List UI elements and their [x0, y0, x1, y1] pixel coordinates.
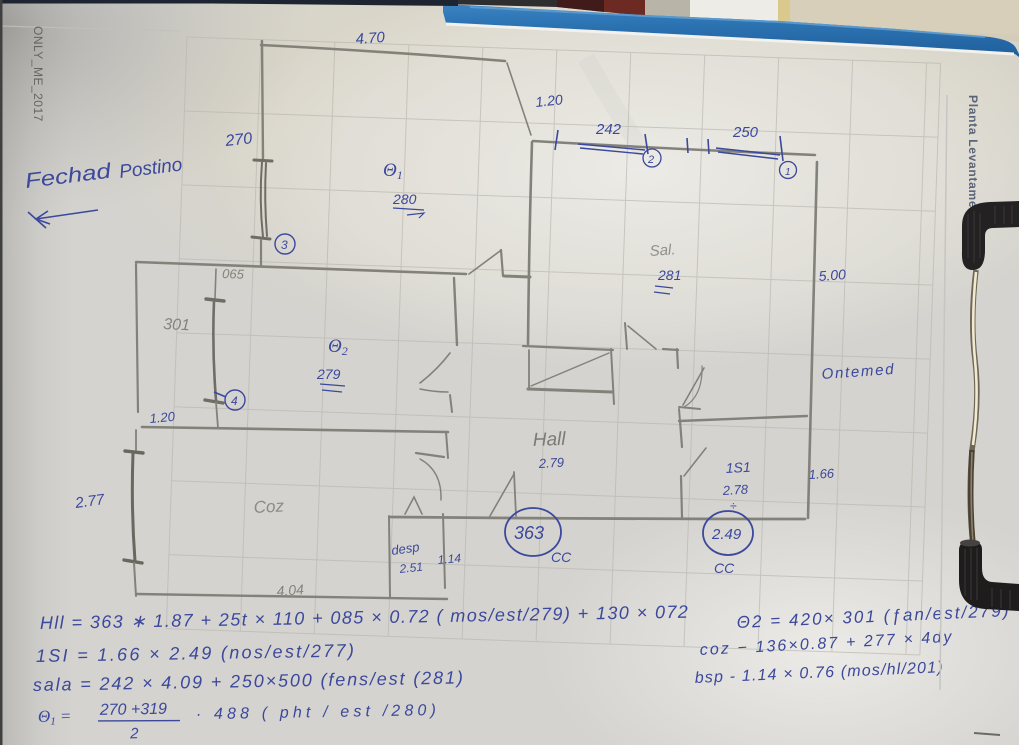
- svg-text:4.70: 4.70: [355, 29, 386, 48]
- svg-text:3: 3: [281, 238, 288, 252]
- svg-text:279: 279: [316, 366, 341, 382]
- svg-text:270 +319: 270 +319: [99, 701, 168, 719]
- svg-text:ONLY_ME_2017: ONLY_ME_2017: [31, 26, 45, 122]
- svg-text:363: 363: [514, 523, 544, 543]
- svg-text:2: 2: [647, 154, 654, 166]
- svg-text:270: 270: [224, 130, 253, 150]
- svg-text:2.49: 2.49: [711, 526, 742, 543]
- svg-text:2.78: 2.78: [721, 482, 749, 498]
- svg-text:Sal.: Sal.: [649, 241, 676, 260]
- svg-text:Hall: Hall: [532, 429, 566, 451]
- svg-text:250: 250: [732, 124, 759, 141]
- svg-text:1.14: 1.14: [437, 551, 462, 567]
- svg-text:301: 301: [163, 316, 191, 334]
- svg-text:1.66: 1.66: [808, 466, 835, 482]
- svg-text:CC: CC: [551, 549, 572, 565]
- svg-text:280: 280: [392, 191, 417, 207]
- svg-text:1.20: 1.20: [149, 409, 176, 426]
- svg-text:5.00: 5.00: [818, 266, 847, 284]
- svg-text:2.79: 2.79: [537, 455, 564, 471]
- svg-text:242: 242: [595, 121, 622, 138]
- svg-text:4.04: 4.04: [276, 581, 305, 599]
- svg-text:Coz: Coz: [253, 496, 285, 517]
- svg-text:1S1: 1S1: [725, 459, 751, 476]
- svg-text:2: 2: [129, 725, 139, 742]
- svg-text:1: 1: [785, 167, 791, 178]
- svg-text:2.51: 2.51: [398, 560, 424, 576]
- svg-text:281: 281: [657, 267, 681, 283]
- svg-text:4: 4: [231, 394, 238, 408]
- svg-text:Θ1 =: Θ1 =: [38, 706, 72, 728]
- svg-text:1.20: 1.20: [535, 91, 564, 110]
- svg-text:065: 065: [222, 266, 245, 282]
- svg-text:CC: CC: [714, 560, 735, 576]
